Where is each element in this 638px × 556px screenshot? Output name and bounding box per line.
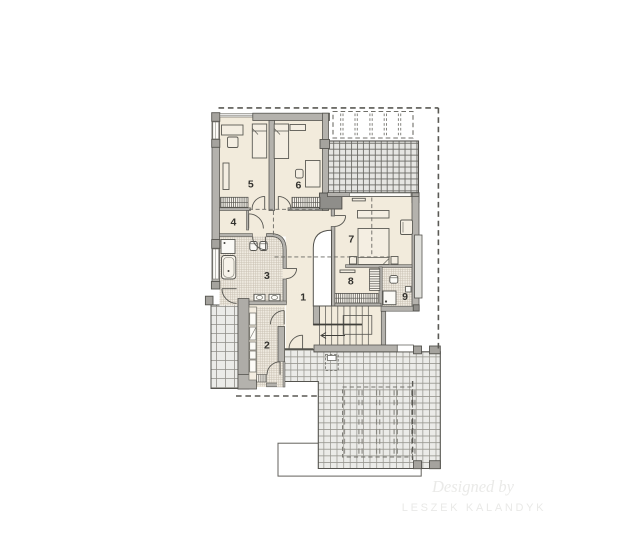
svg-text:5: 5 bbox=[248, 179, 254, 191]
svg-text:6: 6 bbox=[295, 180, 301, 192]
svg-text:Designed by: Designed by bbox=[431, 477, 515, 496]
svg-text:3: 3 bbox=[264, 270, 270, 282]
svg-text:4: 4 bbox=[230, 216, 236, 228]
svg-text:2: 2 bbox=[264, 339, 270, 351]
svg-text:LESZEK KALANDYK: LESZEK KALANDYK bbox=[402, 502, 546, 514]
svg-text:9: 9 bbox=[402, 291, 408, 303]
svg-text:1: 1 bbox=[300, 291, 306, 303]
svg-text:8: 8 bbox=[348, 276, 354, 288]
svg-text:7: 7 bbox=[348, 234, 354, 246]
